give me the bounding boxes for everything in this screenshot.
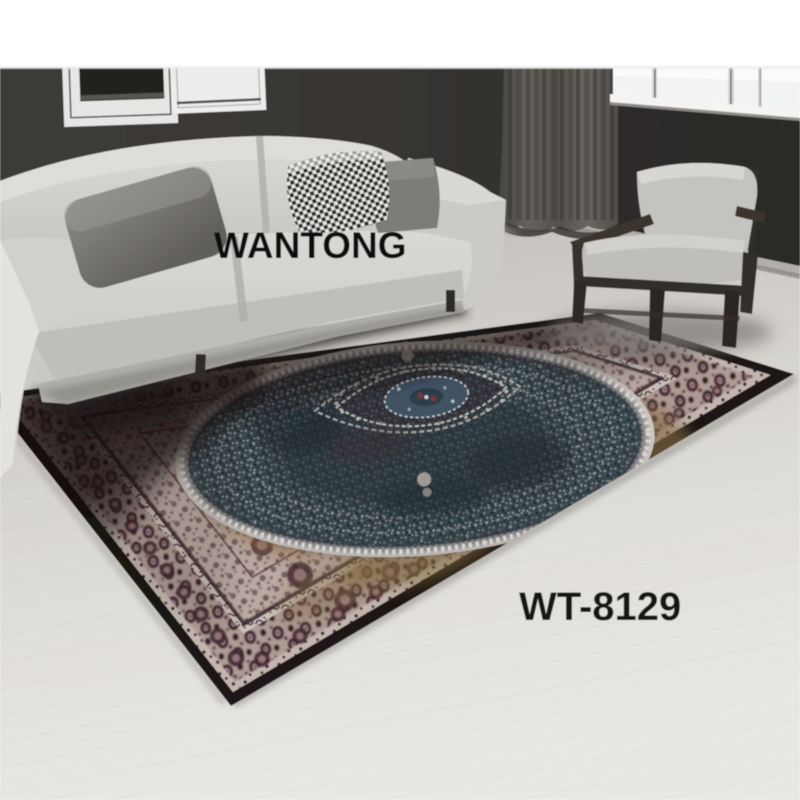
svg-text:WANTONG: WANTONG	[214, 225, 407, 266]
svg-text:WT-8129: WT-8129	[519, 585, 681, 629]
